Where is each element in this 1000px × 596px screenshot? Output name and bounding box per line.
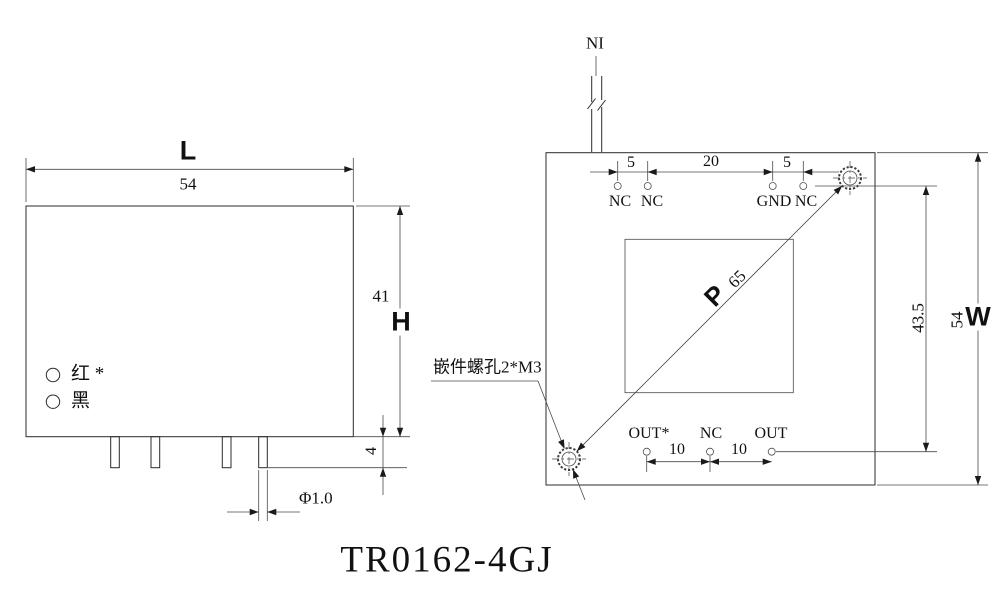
dim-length-letter: L	[180, 138, 197, 165]
pin-label-gnd: GND	[757, 194, 792, 210]
dim-hole-span: 43.5	[910, 303, 927, 333]
pin-1	[111, 437, 120, 468]
pin-2	[151, 437, 160, 468]
red-wire-label: 红 *	[71, 365, 104, 384]
pin-label-nc-1: NC	[609, 194, 631, 210]
technical-drawing: L 54 41 H 4 Φ1.0 红 * 黑 NI 5 20 5 NC NC G…	[0, 0, 1000, 596]
black-wire-dot	[46, 395, 59, 408]
left-view-linework	[26, 158, 410, 521]
pin-label-nc-3: NC	[795, 194, 817, 210]
dim-pin-diameter: Φ1.0	[299, 490, 333, 507]
black-wire-label: 黑	[71, 392, 90, 411]
dim-width-letter: W	[963, 304, 992, 331]
dim-top-3: 5	[783, 155, 791, 171]
core-outline	[625, 239, 793, 392]
drawing-title: TR0162-4GJ	[340, 542, 553, 579]
pin-label-nc-2: NC	[641, 194, 663, 210]
drawing-canvas	[0, 0, 1000, 596]
dim-pin-length: 4	[364, 447, 380, 455]
dim-bottom-2: 10	[731, 442, 747, 458]
insert-hole-note: 嵌件螺孔2*M3	[433, 359, 542, 376]
dim-top-1: 5	[627, 155, 635, 171]
pin-4	[259, 437, 268, 468]
input-lead-label: NI	[586, 35, 604, 52]
dim-length-value: 54	[180, 176, 197, 193]
dim-height-value: 41	[373, 288, 390, 305]
pitch-diagonal	[577, 186, 842, 451]
dim-height-letter: H	[389, 309, 413, 336]
dim-top-2: 20	[703, 154, 719, 170]
pin-label-out-star: OUT*	[629, 426, 670, 442]
pin-label-out: OUT	[755, 426, 788, 442]
pin-3	[222, 437, 231, 468]
pin-label-nc-4: NC	[700, 426, 722, 442]
dim-bottom-1: 10	[669, 442, 685, 458]
red-wire-dot	[46, 368, 59, 381]
